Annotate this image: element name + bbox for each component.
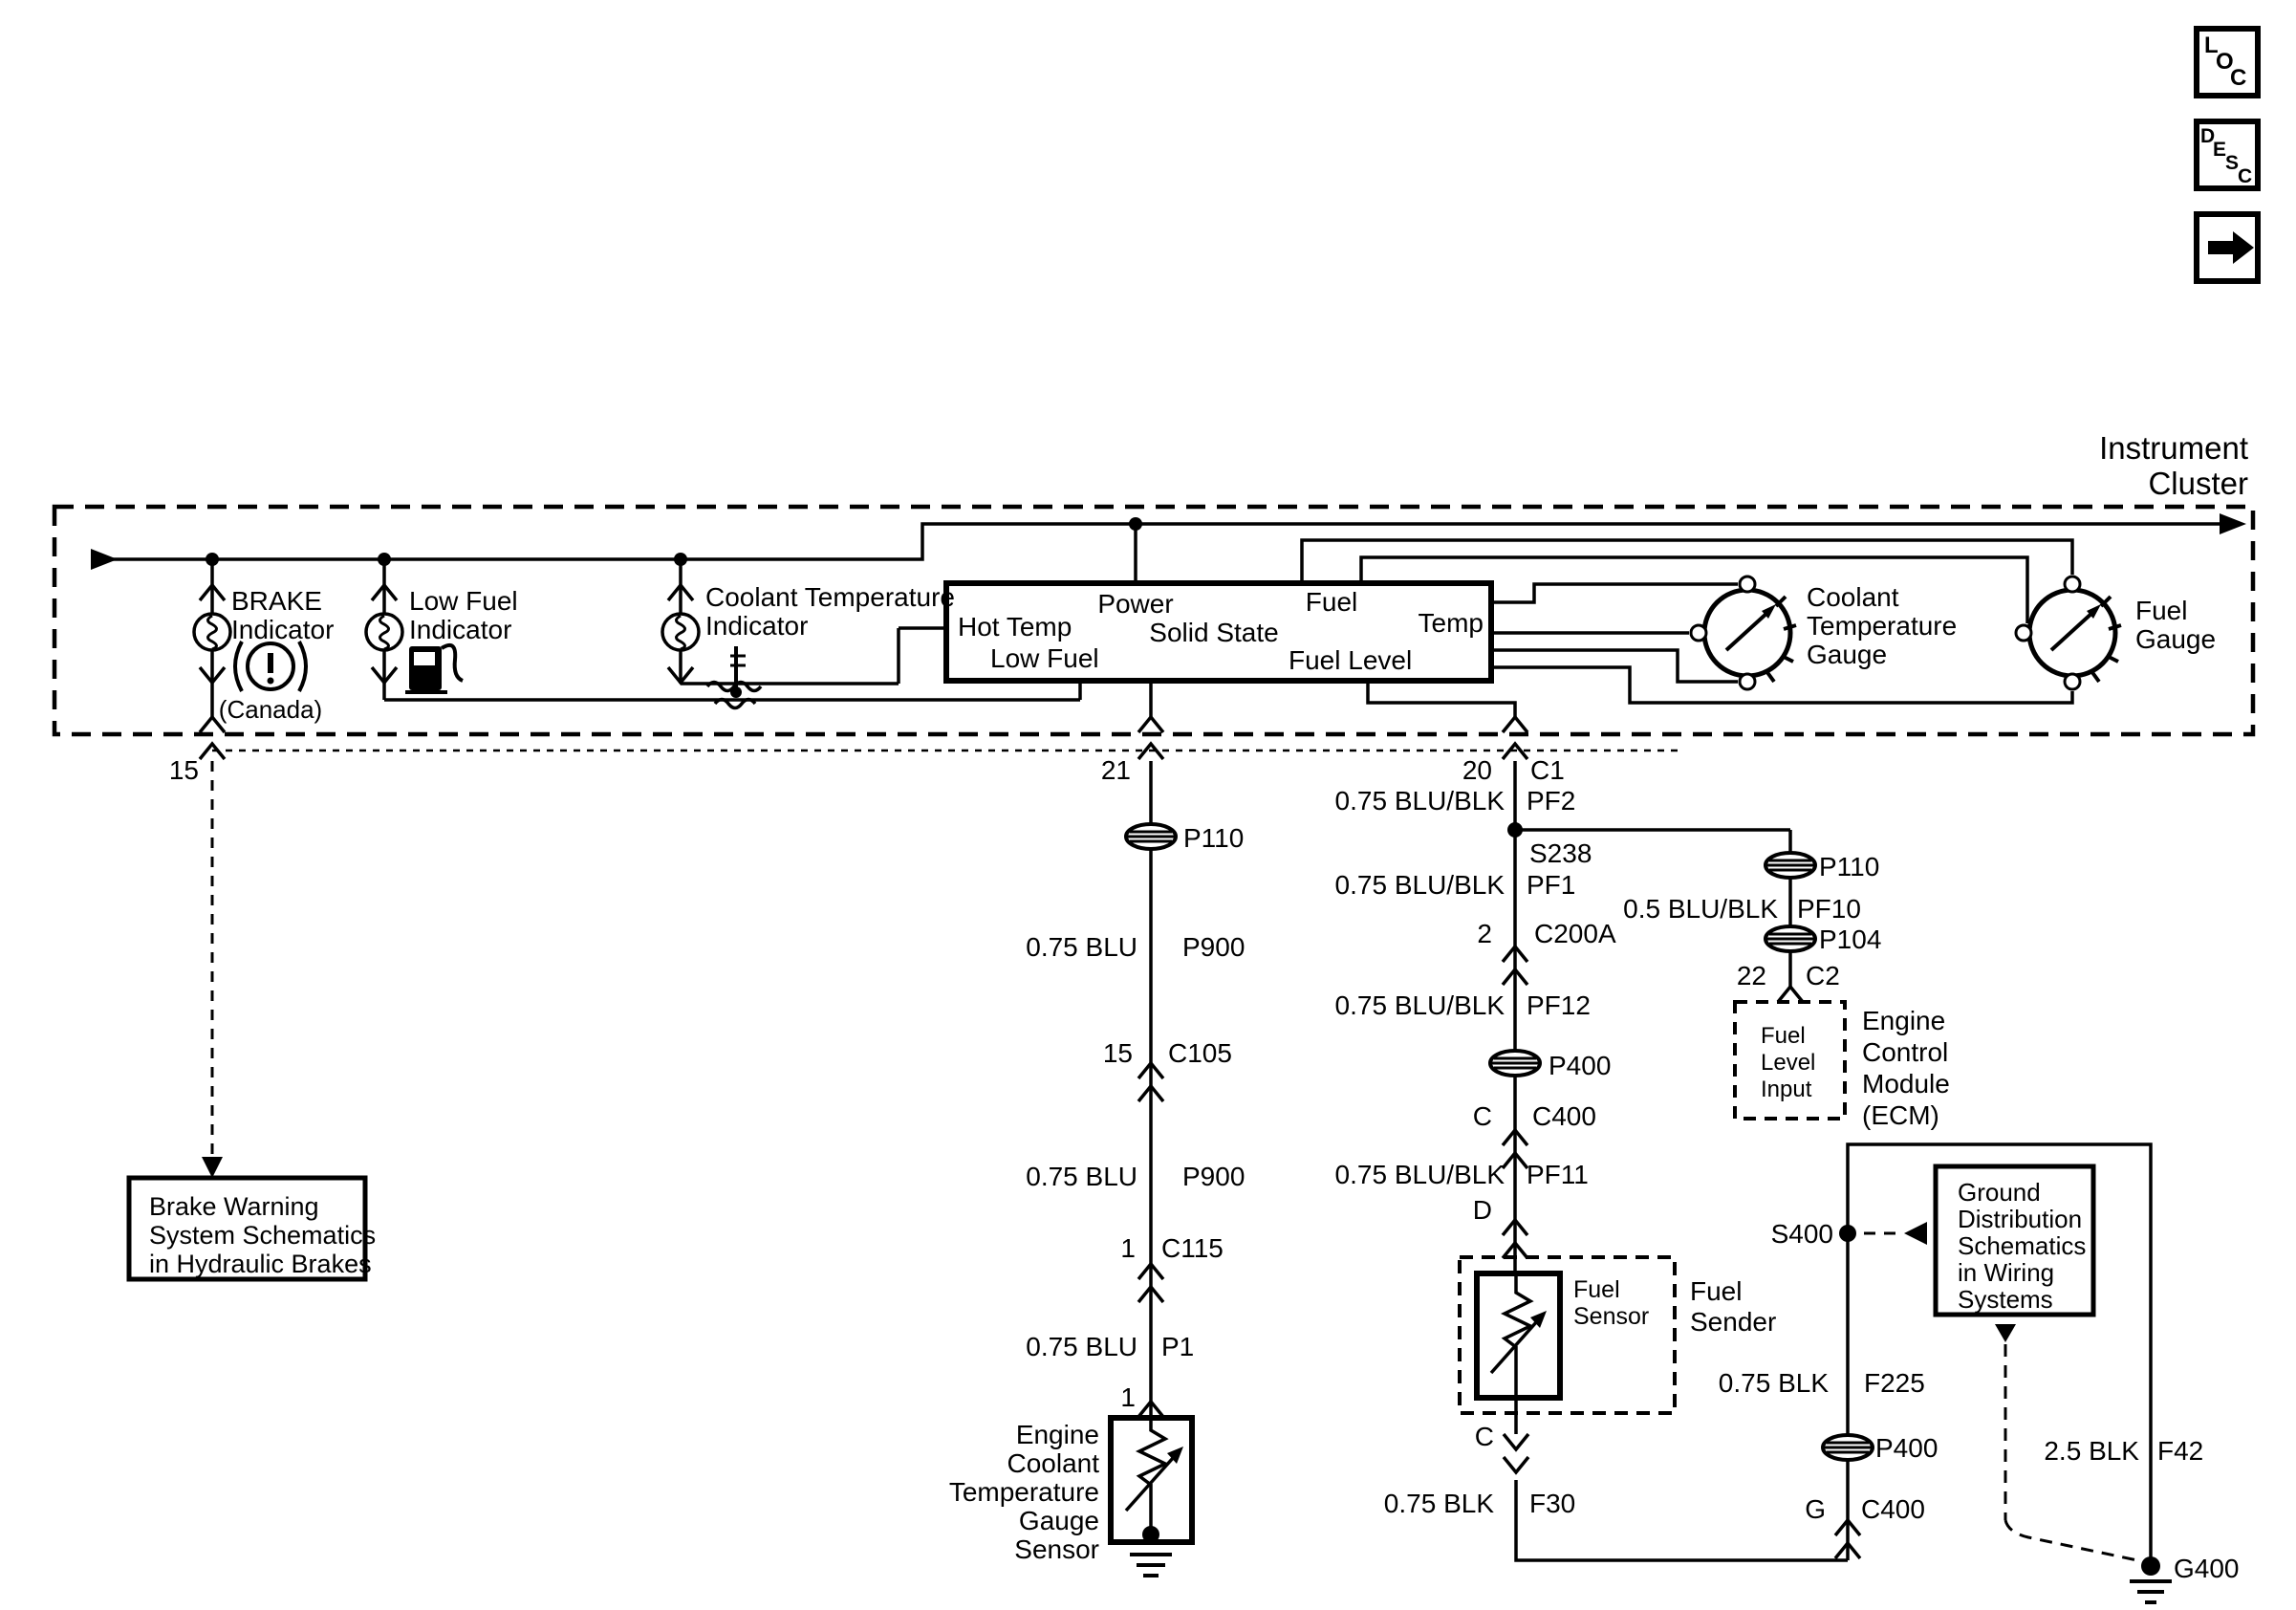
wire-size-label: 0.75 BLK xyxy=(1384,1490,1494,1517)
ground-ref-text: Systems xyxy=(1958,1287,2053,1313)
connector-label: C105 xyxy=(1168,1039,1232,1067)
ground-symbol-icon xyxy=(1130,1555,1172,1576)
grommet-p110-branch xyxy=(1765,853,1815,878)
ecm-name-label: Engine xyxy=(1862,1007,1945,1034)
ect-sensor-label: Gauge xyxy=(1019,1507,1099,1534)
connector-label: C115 xyxy=(1161,1234,1224,1262)
brake-indicator-label: BRAKE xyxy=(231,587,322,615)
cluster-title-line1: Instrument xyxy=(2099,432,2248,466)
wire-size-label: 0.75 BLU/BLK xyxy=(1335,1161,1505,1188)
ecm-name-label: (ECM) xyxy=(1862,1101,1939,1129)
grommet-p400-right xyxy=(1823,1435,1873,1460)
grommet-label: P110 xyxy=(1819,853,1879,881)
pin-label: D xyxy=(1473,1196,1492,1224)
pin-label: 2 xyxy=(1477,920,1492,947)
ct-gauge-label: Coolant xyxy=(1807,583,1899,611)
splice-s400 xyxy=(1839,1225,1856,1242)
grommet-label: P104 xyxy=(1819,925,1881,953)
ground-ref-text: Ground xyxy=(1958,1180,2041,1206)
pin-label: C xyxy=(1473,1102,1492,1130)
coolant-temperature-gauge-icon xyxy=(1691,577,1796,689)
grommet-label: P400 xyxy=(1875,1434,1938,1462)
loc-icon[interactable]: C xyxy=(2230,67,2246,90)
module-name-label: Solid State xyxy=(1128,619,1300,646)
pin-label-15: 15 xyxy=(169,756,199,784)
wire-size-label: 0.75 BLK xyxy=(1719,1369,1829,1397)
grommet-p104 xyxy=(1765,926,1815,951)
connector-label: C400 xyxy=(1532,1102,1596,1130)
connector-label: C400 xyxy=(1861,1495,1925,1523)
fuel-gauge-label: Fuel xyxy=(2135,597,2187,624)
desc-icon[interactable]: E xyxy=(2213,140,2226,160)
fuel-gauge-label: Gauge xyxy=(2135,625,2216,653)
splice-label: S238 xyxy=(1529,839,1592,867)
ect-sensor-label: Engine xyxy=(1016,1421,1099,1448)
ecm-name-label: Control xyxy=(1862,1038,1948,1066)
wire-size-label: 0.75 BLU/BLK xyxy=(1335,991,1505,1019)
ground-ref-text: Distribution xyxy=(1958,1207,2082,1232)
brake-ref-text: Brake Warning xyxy=(149,1193,319,1220)
ect-sensor-label: Temperature xyxy=(949,1478,1099,1506)
wire-id-label: PF11 xyxy=(1527,1161,1589,1188)
ecm-input-label: Fuel xyxy=(1761,1024,1806,1048)
low-fuel-indicator-label: Low Fuel xyxy=(409,587,518,615)
pin-label: G xyxy=(1805,1495,1826,1523)
grommet-label: P400 xyxy=(1549,1052,1611,1079)
wire-id-label: PF10 xyxy=(1797,895,1861,923)
module-fuel-label: Fuel xyxy=(1286,588,1377,616)
wire-id-label: F225 xyxy=(1864,1369,1925,1397)
ecm-input-label: Level xyxy=(1761,1051,1815,1075)
grommet-p110-left xyxy=(1126,824,1176,849)
module-fuel-level-label: Fuel Level xyxy=(1289,646,1412,674)
wire-id-label: PF2 xyxy=(1527,787,1575,815)
ect-sensor-label: Sensor xyxy=(1014,1535,1099,1563)
module-hot-temp-label: Hot Temp xyxy=(958,613,1072,641)
wire-size-label: 0.75 BLU/BLK xyxy=(1335,871,1505,899)
cluster-title-line2: Cluster xyxy=(2148,468,2248,501)
wire-size-label: 0.75 BLU/BLK xyxy=(1335,787,1505,815)
down-arrow-icon xyxy=(1995,1324,2016,1342)
canada-label: (Canada) xyxy=(194,697,347,723)
ect-sensor-label: Coolant xyxy=(1007,1449,1099,1477)
wiring-diagram: L O C D E S C Instrument Cluster BRAKE I… xyxy=(0,0,2296,1610)
wire-size-label: 0.75 BLU xyxy=(1026,933,1137,961)
pin-label: 22 xyxy=(1737,962,1766,990)
bus-entry-arrow-icon xyxy=(91,549,118,570)
wire-id-label: P900 xyxy=(1182,933,1245,961)
ecm-name-label: Module xyxy=(1862,1070,1950,1098)
wire-size-label: 0.75 BLU xyxy=(1026,1333,1137,1360)
brake-ref-text: System Schematics xyxy=(149,1222,376,1249)
connector-label: C2 xyxy=(1806,962,1840,990)
fuel-sender-label: Fuel xyxy=(1690,1277,1742,1305)
module-power-label: Power xyxy=(1069,590,1202,618)
fuel-gauge-icon xyxy=(2016,577,2121,689)
pin-label: C xyxy=(1475,1423,1494,1450)
low-fuel-indicator-label: Indicator xyxy=(409,616,511,643)
ground-label: G400 xyxy=(2174,1555,2240,1582)
left-arrow-icon xyxy=(1904,1222,1927,1245)
pin-label-20: 20 xyxy=(1462,756,1492,784)
module-low-fuel-label: Low Fuel xyxy=(990,644,1099,672)
coolant-indicator-label: Coolant Temperature xyxy=(705,583,955,611)
wire-id-label: P900 xyxy=(1182,1163,1245,1190)
pin-label: 1 xyxy=(1120,1234,1136,1262)
down-arrow-icon xyxy=(202,1157,223,1178)
wire-id-label: P1 xyxy=(1161,1333,1194,1360)
ct-gauge-label: Temperature xyxy=(1807,612,1957,640)
module-temp-label: Temp xyxy=(1419,609,1484,637)
wire-id-label: PF12 xyxy=(1527,991,1591,1019)
connector-label: C200A xyxy=(1534,920,1616,947)
brake-indicator-label: Indicator xyxy=(231,616,334,643)
ct-gauge-label: Gauge xyxy=(1807,641,1887,668)
splice-label: S400 xyxy=(1771,1220,1833,1248)
wire-id-label: PF1 xyxy=(1527,871,1575,899)
wire-size-label: 0.5 BLU/BLK xyxy=(1623,895,1778,923)
ecm-input-label: Input xyxy=(1761,1077,1811,1101)
coolant-indicator-label: Indicator xyxy=(705,612,808,640)
connector-label-c1: C1 xyxy=(1530,756,1565,784)
bus-exit-arrow-icon xyxy=(2220,513,2246,534)
grommet-label: P110 xyxy=(1183,824,1244,852)
g400-ground-icon xyxy=(2130,1581,2172,1602)
pin-label: 15 xyxy=(1103,1039,1133,1067)
fuel-pump-icon xyxy=(405,645,463,692)
pin-label: 1 xyxy=(1120,1383,1136,1411)
brake-ref-text: in Hydraulic Brakes xyxy=(149,1251,372,1277)
wire-id-label: F30 xyxy=(1529,1490,1575,1517)
grommet-p400-center xyxy=(1490,1051,1540,1076)
fuel-sensor-label: Fuel xyxy=(1573,1277,1620,1302)
desc-icon[interactable]: S xyxy=(2225,153,2239,173)
pin-label-21: 21 xyxy=(1101,756,1131,784)
ground-ref-text: Schematics xyxy=(1958,1233,2086,1259)
fuel-sensor-label: Sensor xyxy=(1573,1304,1649,1329)
desc-icon[interactable]: C xyxy=(2238,166,2252,186)
wire-size-label: 2.5 BLK xyxy=(2044,1437,2139,1465)
ground-ref-text: in Wiring xyxy=(1958,1260,2054,1286)
fuel-sender-label: Sender xyxy=(1690,1308,1776,1336)
wire-size-label: 0.75 BLU xyxy=(1026,1163,1137,1190)
wire-id-label: F42 xyxy=(2157,1437,2203,1465)
schematic-lines xyxy=(0,0,2296,1610)
